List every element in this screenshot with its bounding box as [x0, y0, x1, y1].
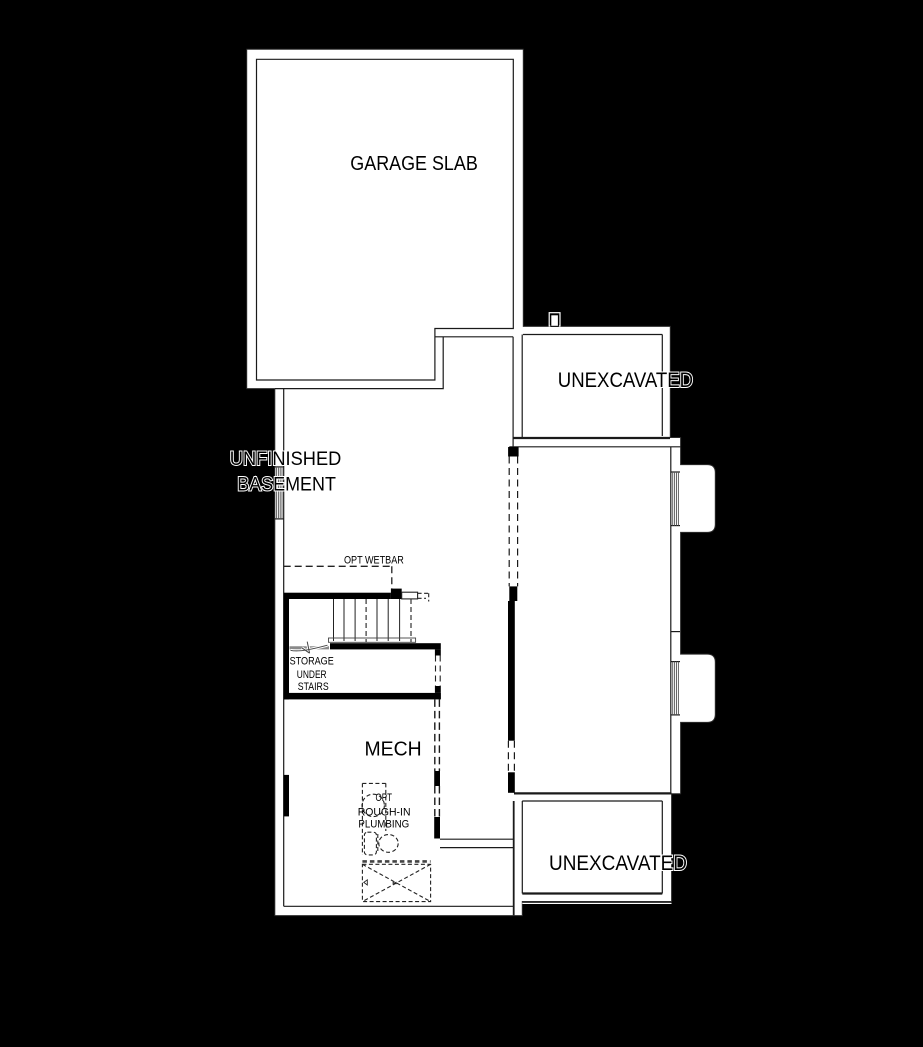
svg-text:UNEXCAVATED: UNEXCAVATED	[558, 369, 693, 392]
svg-text:OPT: OPT	[376, 792, 393, 804]
svg-text:BASEMENT: BASEMENT	[237, 473, 336, 495]
svg-text:GARAGE SLAB: GARAGE SLAB	[350, 153, 478, 175]
svg-text:STORAGE: STORAGE	[290, 656, 335, 668]
svg-text:PLUMBING: PLUMBING	[358, 819, 409, 831]
svg-text:OPT WETBAR: OPT WETBAR	[344, 554, 404, 566]
svg-text:UNDER: UNDER	[297, 669, 327, 681]
svg-text:ROUGH-IN: ROUGH-IN	[358, 806, 411, 818]
svg-text:STAIRS: STAIRS	[298, 681, 329, 693]
svg-text:MECH: MECH	[365, 738, 422, 761]
svg-text:UNEXCAVATED: UNEXCAVATED	[549, 852, 687, 875]
svg-text:UNFINISHED: UNFINISHED	[230, 448, 341, 470]
